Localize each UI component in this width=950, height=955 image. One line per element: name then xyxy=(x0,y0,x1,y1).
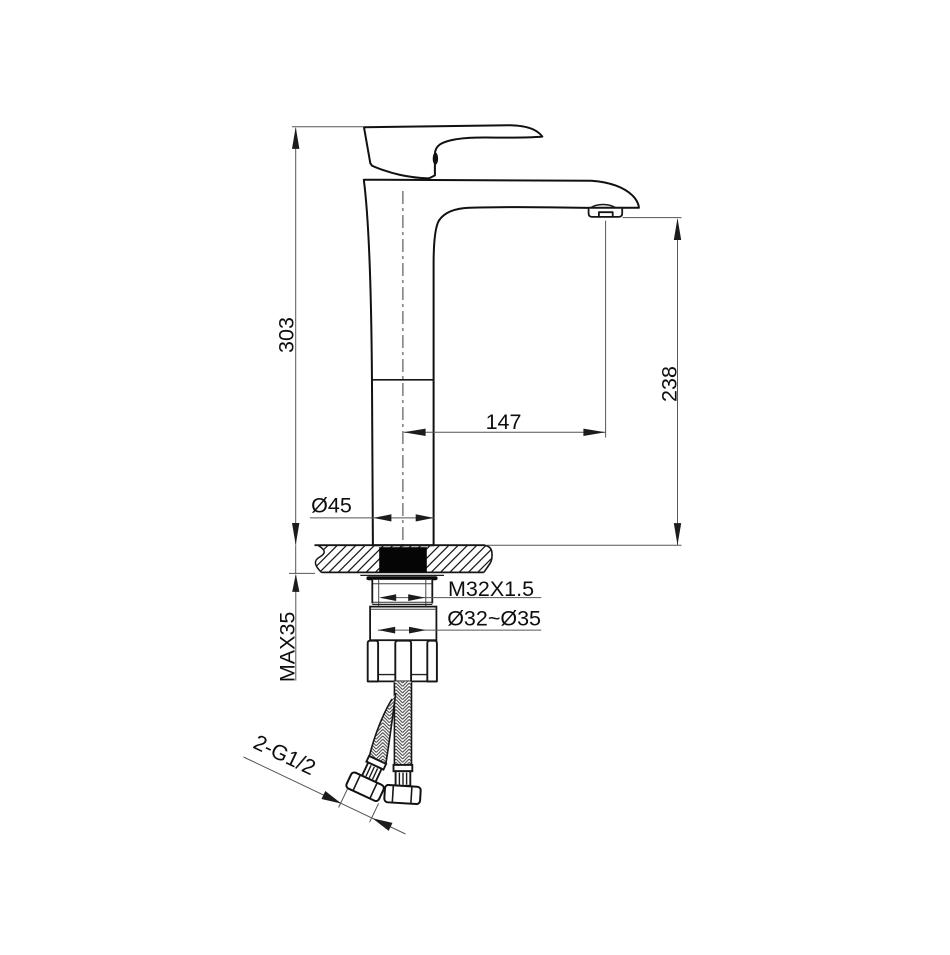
svg-text:Ø45: Ø45 xyxy=(311,494,352,518)
svg-text:147: 147 xyxy=(486,410,522,434)
svg-text:303: 303 xyxy=(274,317,298,353)
svg-text:Ø32~Ø35: Ø32~Ø35 xyxy=(447,607,541,631)
svg-text:MAX35: MAX35 xyxy=(275,612,299,683)
svg-text:M32X1.5: M32X1.5 xyxy=(448,577,534,601)
svg-text:238: 238 xyxy=(657,366,681,402)
